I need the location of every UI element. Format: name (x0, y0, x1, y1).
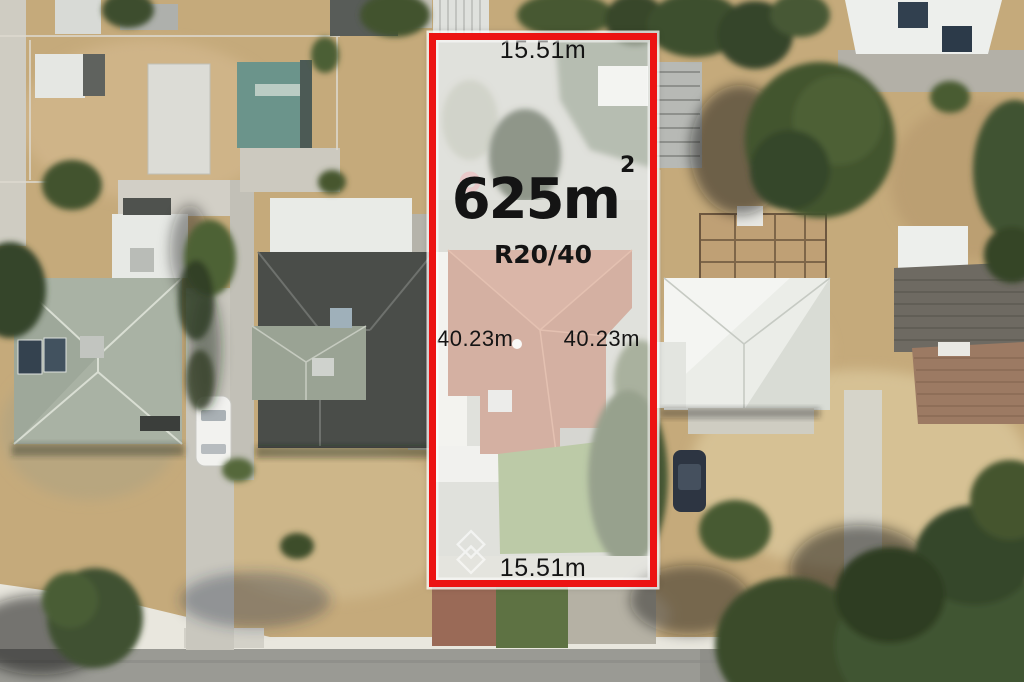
lot-area-superscript: 2 (620, 153, 635, 178)
zoning-label: R20/40 (436, 240, 650, 269)
double-diamond-icon (452, 528, 490, 576)
lot-boundary-overlay: 15.51m 625m2 R20/40 40.23m 40.23m 15.51m (429, 33, 657, 587)
dark-roof-house (252, 198, 436, 458)
aerial-lot-listing-image: 15.51m 625m2 R20/40 40.23m 40.23m 15.51m (0, 0, 1024, 682)
depth-right-label: 40.23m (564, 326, 640, 352)
lot-area-value: 625m (452, 167, 619, 232)
construction-frame (700, 206, 826, 280)
depth-left-label: 40.23m (437, 326, 513, 352)
verge-below-lot (432, 584, 656, 648)
lot-area-label: 625m2 (436, 172, 650, 228)
right-house (654, 278, 830, 434)
frontage-top-label: 15.51m (436, 36, 650, 65)
dark-car (673, 450, 706, 512)
teal-shed (237, 60, 312, 148)
